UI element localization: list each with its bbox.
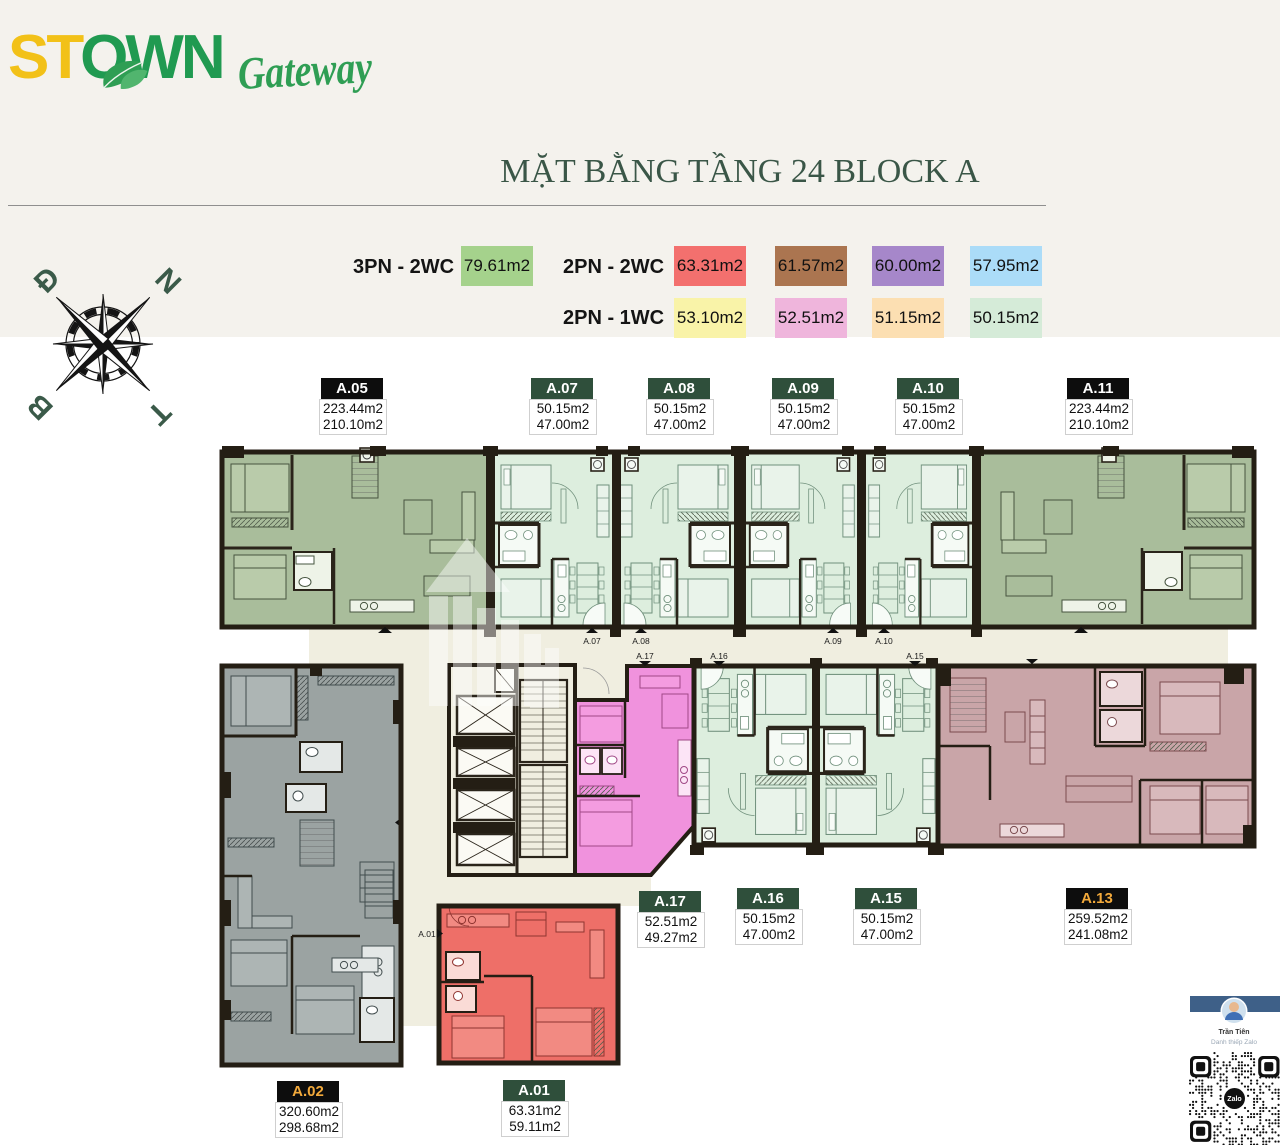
svg-text:A.07: A.07: [583, 636, 601, 646]
svg-text:A.16: A.16: [710, 651, 728, 661]
svg-text:Zalo: Zalo: [1227, 1096, 1241, 1103]
svg-text:A.15: A.15: [906, 651, 924, 661]
svg-text:A.17: A.17: [636, 651, 654, 661]
svg-text:A.01: A.01: [418, 929, 436, 939]
svg-text:A.09: A.09: [824, 636, 842, 646]
svg-text:A.10: A.10: [875, 636, 893, 646]
svg-text:Danh thiếp Zalo: Danh thiếp Zalo: [1211, 1037, 1257, 1046]
svg-text:Trần Tiên: Trần Tiên: [1219, 1027, 1250, 1036]
svg-text:A.08: A.08: [632, 636, 650, 646]
